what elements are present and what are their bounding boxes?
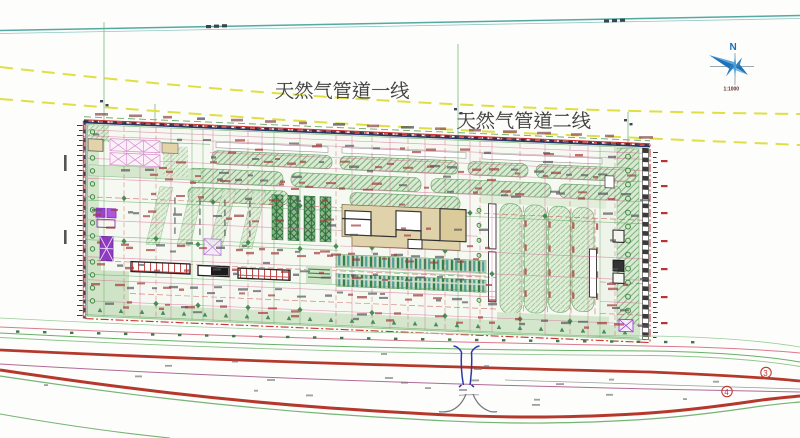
svg-text:4: 4	[724, 388, 729, 397]
svg-text:3: 3	[763, 369, 768, 378]
svg-text:N: N	[730, 42, 737, 53]
svg-text:1:1000: 1:1000	[724, 87, 740, 93]
